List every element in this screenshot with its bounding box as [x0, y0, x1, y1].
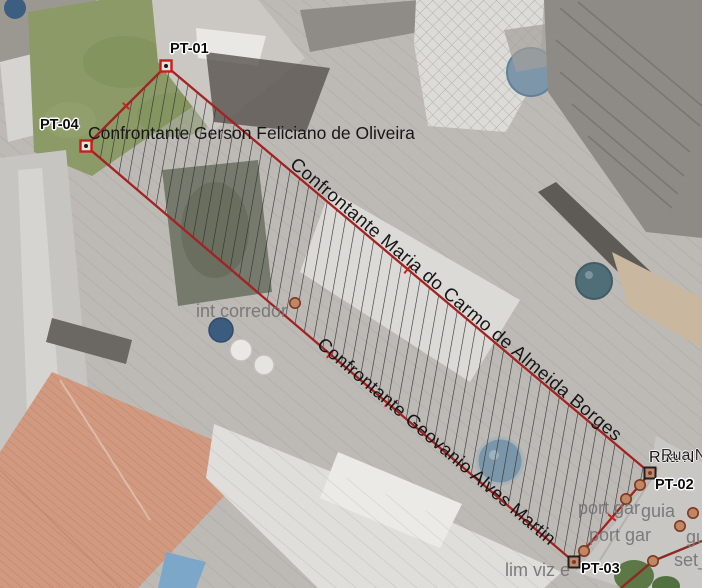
sketch-vertex-circle[interactable]	[635, 480, 645, 490]
annotation-port-gar-2: port gar	[589, 526, 651, 545]
vertex-label-pt04: PT-04	[40, 118, 79, 133]
water-tank	[576, 263, 612, 299]
annotation-guia-clipped: gu	[686, 528, 702, 547]
annotation-lim-viz-e: lim viz e	[505, 561, 570, 580]
vertex-label-pt03: PT-03	[581, 562, 620, 577]
vertex-marker-pt02[interactable]	[645, 468, 656, 479]
map-canvas[interactable]: Confrontante Maria do Carmo de Almeida B…	[0, 0, 702, 588]
water-tank	[254, 355, 274, 375]
annotation-set: set_	[674, 551, 702, 570]
sketch-vertex-circle[interactable]	[579, 546, 589, 556]
sketch-vertex-circle[interactable]	[688, 508, 698, 518]
vertex-marker-pt01[interactable]	[161, 61, 172, 72]
annotation-port-gar-1: port gar	[578, 499, 640, 518]
sketch-vertex-circle[interactable]	[648, 556, 658, 566]
annotation-int-corredor: int corredor	[196, 302, 287, 321]
vertex-label-pt01: PT-01	[170, 42, 209, 57]
sketch-vertex-circle[interactable]	[290, 298, 300, 308]
sketch-vertex-circle[interactable]	[675, 521, 685, 531]
vertex-label-pt02: PT-02	[655, 478, 694, 493]
water-tank	[209, 318, 233, 342]
vertex-marker-pt03[interactable]	[569, 557, 580, 568]
water-tank	[230, 339, 252, 361]
annotation-guia: guia	[641, 502, 675, 521]
neighbor-label-top: Confrontante Gerson Feliciano de Oliveir…	[88, 124, 415, 142]
street-label-overlap: Rua N	[661, 448, 702, 465]
